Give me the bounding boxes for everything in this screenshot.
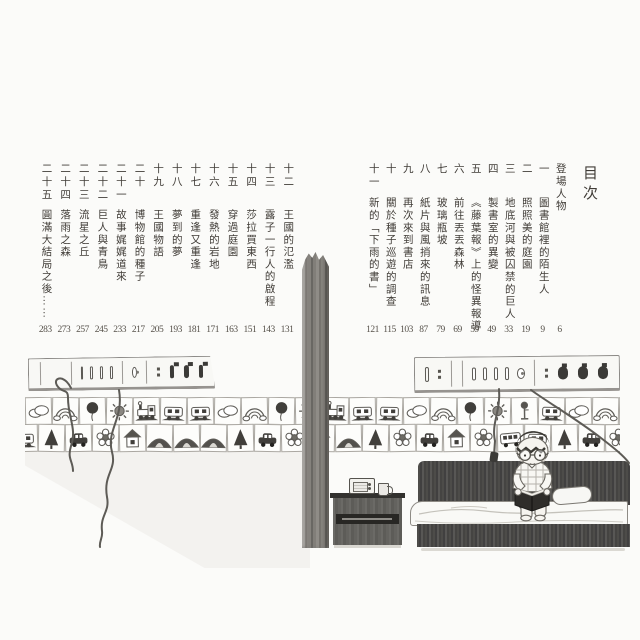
chapter-title: 王國物語	[152, 209, 163, 258]
chapter-title: 製書室的異變	[486, 197, 497, 271]
chapter-title: 巨人與青鳥	[96, 209, 107, 271]
outlet-slot-icon	[505, 367, 509, 380]
chapter-title: 前往丟丟森林	[452, 197, 463, 271]
toc-entry: 二十四落雨之森273	[55, 163, 74, 333]
alarm-clock-icon	[349, 478, 375, 494]
flower-tile-icon	[470, 424, 497, 452]
chapter-title: 夢到的夢	[170, 209, 181, 258]
safety-socket-icon	[558, 366, 568, 379]
safety-socket-icon	[198, 365, 203, 378]
page-title: 目次	[581, 163, 596, 333]
outlet-slot-icon	[110, 366, 113, 379]
toc-entry: 十七重逢又重逢181	[185, 163, 204, 333]
toc-entry: 十一新的「下雨的書」121	[364, 163, 381, 333]
chapter-number: 十八	[170, 163, 181, 209]
rainbow-tile-icon	[592, 397, 619, 425]
chapter-number: 十九	[152, 163, 163, 209]
chapter-number: 二十二	[96, 163, 107, 209]
chapter-title: 圓滿大結局之後……	[40, 209, 51, 320]
chapter-number: 十五	[226, 163, 237, 209]
bus-tile-icon	[497, 424, 525, 453]
chapter-page-number: 103	[400, 325, 413, 335]
flower-tile-icon	[92, 424, 119, 452]
toc-entry: 一圖書館裡的陌生人9	[534, 163, 551, 333]
chapter-number: 十三	[263, 163, 274, 209]
tree-tile-icon	[362, 424, 389, 452]
bed-mattress	[410, 501, 628, 526]
chapter-title: 關於種子巡遊的調查	[384, 197, 395, 308]
hill-tile-icon	[200, 424, 227, 452]
toc-entry: 十八夢到的夢193	[166, 163, 185, 333]
chapter-page-number: 49	[487, 325, 496, 335]
safety-socket-icon	[170, 365, 175, 378]
chapter-number: 十	[384, 163, 395, 197]
car-tile-icon	[65, 424, 93, 453]
toc-entry: 三地底河與被囚禁的巨人33	[500, 163, 517, 333]
toc-entry: 十五穿過庭園163	[222, 163, 241, 333]
mug-icon	[378, 483, 389, 496]
chapter-page-number: 87	[419, 325, 428, 335]
chapter-page-number: 163	[225, 325, 238, 335]
outlet-dots-icon	[157, 367, 160, 376]
toc-entry: 二十五圓滿大結局之後……283	[36, 163, 55, 333]
power-strip-left	[28, 356, 215, 392]
chapter-number: 十六	[207, 163, 218, 209]
wagon-tile-icon	[376, 397, 403, 425]
chapter-page-number: 273	[58, 325, 71, 335]
toc-entry: 八紙片與風捎來的訊息87	[415, 163, 432, 333]
strip-divider	[462, 361, 463, 387]
chapter-title: 《藤葉報》上的怪異報導	[469, 197, 480, 332]
book-spread-page: 目次 登場人物6一圖書館裡的陌生人9二照照美的庭園19三地底河與被囚禁的巨人33…	[0, 0, 640, 640]
car-tile-icon	[254, 424, 281, 452]
nightstand-shadow	[334, 545, 401, 548]
chapter-title: 博物館的種子	[133, 209, 144, 283]
chapter-number: 二十	[133, 163, 144, 209]
toc-entry: 十四莎拉買東西151	[241, 163, 260, 333]
tree-tile-icon	[38, 424, 65, 452]
house-tile-icon	[119, 424, 147, 453]
outlet-slot-icon	[472, 367, 476, 380]
chapter-title: 地底河與被囚禁的巨人	[503, 197, 514, 320]
chapter-number: 二十五	[40, 163, 51, 209]
rainbow-tile-icon	[52, 397, 79, 425]
chapter-page-number: 6	[557, 325, 561, 335]
chapter-number: 八	[418, 163, 429, 197]
chapter-page-number: 171	[206, 325, 219, 335]
flower-tile-icon	[389, 424, 417, 453]
signal-tile-icon	[511, 397, 539, 425]
chapter-title: 照照美的庭園	[520, 197, 531, 271]
strip-divider	[451, 361, 452, 387]
chapter-number: 四	[486, 163, 497, 197]
safety-socket-icon	[184, 365, 189, 378]
chapter-page-number: 131	[281, 325, 294, 335]
chapter-page-number: 33	[504, 325, 513, 335]
hill-tile-icon	[146, 424, 173, 452]
outlet-slot-icon	[494, 367, 498, 380]
chapter-number: 五	[469, 163, 480, 197]
toc-entry: 十九王國物語205	[148, 163, 167, 333]
car-tile-icon	[416, 424, 443, 452]
chapter-page-number: 143	[262, 325, 275, 335]
sun-tile-icon	[106, 397, 133, 425]
outlet-dots-icon	[545, 368, 548, 377]
chapter-number: 二十四	[59, 163, 70, 209]
chapter-number: 九	[401, 163, 412, 197]
toc-entry: 九再次來到書店103	[398, 163, 415, 333]
toc-left-page: 十二王國的氾濫131十三露子一行人的啟程143十四莎拉買東西151十五穿過庭園1…	[36, 163, 296, 333]
wagon-tile-icon	[187, 397, 215, 425]
strip-divider	[40, 362, 41, 385]
chapter-title: 玻璃瓶坡	[435, 197, 446, 246]
toc-entry: 二十二巨人與青鳥245	[92, 163, 111, 333]
hill-tile-icon	[335, 424, 363, 453]
chapter-page-number: 193	[169, 325, 182, 335]
strip-divider	[71, 362, 72, 385]
toc-entry: 二十博物館的種子217	[129, 163, 148, 333]
chapter-title: 落雨之森	[59, 209, 70, 258]
toc-right-page: 目次 登場人物6一圖書館裡的陌生人9二照照美的庭園19三地底河與被囚禁的巨人33…	[364, 163, 596, 333]
strip-divider	[122, 361, 123, 384]
toc-entry: 二十一故事娓娓道來233	[110, 163, 129, 333]
safety-socket-icon	[598, 366, 608, 379]
outlet-slot-icon	[80, 367, 83, 380]
strip-divider	[534, 360, 535, 386]
chapter-title: 莎拉買東西	[245, 209, 256, 271]
chapter-number: 一	[537, 163, 548, 197]
outlet-slot-icon	[100, 366, 103, 379]
balloon-tile-icon	[268, 397, 295, 425]
outlet-slot-icon	[90, 366, 93, 379]
chapter-title: 再次來到書店	[401, 197, 412, 271]
cloud-tile-icon	[214, 397, 241, 425]
chapter-number: 七	[435, 163, 446, 197]
chapter-title: 登場人物	[554, 163, 565, 212]
balloon-tile-icon	[79, 397, 107, 425]
round-socket-icon	[132, 367, 137, 378]
toc-entry: 十三露子一行人的啟程143	[259, 163, 278, 333]
chapter-page-number: 115	[383, 325, 395, 335]
nightstand-drawer	[336, 514, 399, 524]
chapter-number: 二	[520, 163, 531, 197]
strip-endcap-icon	[425, 366, 429, 381]
chapter-page-number: 121	[366, 325, 379, 335]
wagon-tile-icon	[160, 397, 187, 425]
chapter-page-number: 59	[470, 325, 479, 335]
wagon-tile-icon	[25, 424, 38, 453]
chapter-page-number: 257	[76, 325, 89, 335]
chapter-number: 十四	[245, 163, 256, 209]
chapter-title: 流星之丘	[77, 209, 88, 258]
toc-entry: 四製書室的異變49	[483, 163, 500, 333]
toc-entry: 二十三流星之丘257	[73, 163, 92, 333]
sun-tile-icon	[484, 397, 511, 425]
wagon-tile-icon	[349, 397, 377, 425]
chapter-page-number: 181	[188, 325, 201, 335]
chapter-number: 二十三	[77, 163, 88, 209]
chapter-number: 十二	[282, 163, 293, 209]
chapter-title: 圖書館裡的陌生人	[537, 197, 548, 295]
chapter-page-number: 19	[521, 325, 530, 335]
toc-entry: 七玻璃瓶坡79	[432, 163, 449, 333]
chapter-number: 二十一	[114, 163, 125, 209]
bed-base	[417, 524, 630, 547]
chapter-page-number: 69	[453, 325, 462, 335]
sheet-folds	[411, 502, 628, 526]
chapter-number: 三	[503, 163, 514, 197]
strip-divider	[145, 361, 146, 384]
chapter-title: 穿過庭園	[226, 209, 237, 258]
hill-tile-icon	[173, 424, 201, 453]
chapter-page-number: 217	[132, 325, 145, 335]
tree-tile-icon	[227, 424, 255, 453]
toc-entry: 十二王國的氾濫131	[278, 163, 297, 333]
wagon-tile-icon	[524, 424, 551, 452]
house-tile-icon	[443, 424, 471, 453]
toc-entry: 十關於種子巡遊的調查115	[381, 163, 398, 333]
chapter-number: 十七	[189, 163, 200, 209]
outlet-dots-icon	[438, 369, 441, 378]
chapter-page-number: 205	[150, 325, 163, 335]
chapter-title: 露子一行人的啟程	[263, 209, 274, 307]
chapter-number: 十一	[367, 163, 378, 197]
tree-tile-icon	[551, 424, 579, 453]
safety-socket-icon	[578, 366, 588, 379]
toc-entry: 五《藤葉報》上的怪異報導59	[466, 163, 483, 333]
chapter-title: 發熱的岩地	[207, 209, 218, 271]
bed-shadow	[421, 548, 625, 551]
wagon-tile-icon	[538, 397, 565, 425]
balloon-tile-icon	[619, 397, 620, 425]
cloud-tile-icon	[403, 397, 431, 425]
chapter-page-number: 9	[540, 325, 544, 335]
chapter-title: 重逢又重逢	[189, 209, 200, 271]
loco-tile-icon	[133, 397, 161, 425]
chapter-page-number: 79	[436, 325, 445, 335]
toc-entry: 六前往丟丟森林69	[449, 163, 466, 333]
toc-entry: 登場人物6	[551, 163, 568, 333]
cloud-tile-icon	[565, 397, 593, 425]
cloud-tile-icon	[25, 397, 52, 425]
chapter-page-number: 245	[95, 325, 108, 335]
rainbow-tile-icon	[430, 397, 457, 425]
car-tile-icon	[578, 424, 605, 452]
bed-headboard	[418, 461, 630, 505]
chapter-title: 紙片與風捎來的訊息	[418, 197, 429, 308]
chapter-page-number: 151	[243, 325, 256, 335]
chapter-title: 故事娓娓道來	[114, 209, 125, 283]
power-strip-right	[414, 355, 620, 393]
flower-tile-icon	[605, 424, 620, 453]
chapter-title: 王國的氾濫	[282, 209, 293, 271]
rainbow-tile-icon	[241, 397, 269, 425]
wooden-post	[302, 252, 329, 548]
chapter-page-number: 283	[39, 325, 52, 335]
round-socket-icon	[517, 367, 526, 378]
chapter-page-number: 233	[113, 325, 126, 335]
toc-entry: 十六發熱的岩地171	[203, 163, 222, 333]
balloon-tile-icon	[457, 397, 485, 425]
toc-entry: 二照照美的庭園19	[517, 163, 534, 333]
chapter-number: 六	[452, 163, 463, 197]
outlet-slot-icon	[483, 367, 487, 380]
chapter-title: 新的「下雨的書」	[367, 197, 378, 295]
